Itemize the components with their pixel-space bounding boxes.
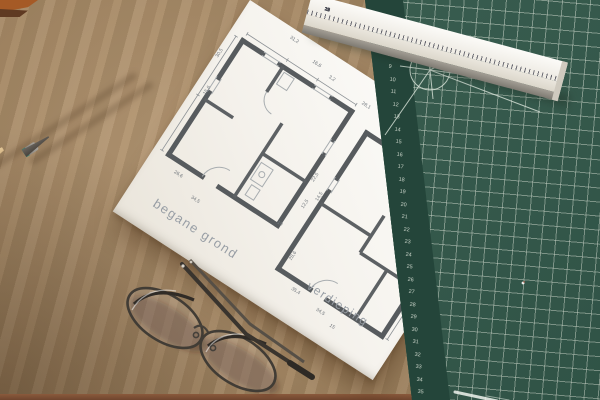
glasses-hinge-glint [181, 264, 184, 267]
reading-glasses [118, 258, 333, 400]
glasses-hinge-glint [190, 261, 193, 264]
glasses-lenses [118, 276, 286, 400]
dim-annotation: 3,2 [328, 74, 337, 82]
hobby-knife [22, 67, 154, 157]
dim-annotation: 16,6 [312, 59, 323, 69]
glasses-temple-tip [290, 363, 312, 377]
cardboard-corner-shadow [0, 9, 28, 17]
photo-scene: 16,6 3,2 28,1 31,1 30,5 15,6 26,6 22,5 1… [0, 0, 600, 400]
dim-annotation: 31,2 [289, 34, 300, 44]
